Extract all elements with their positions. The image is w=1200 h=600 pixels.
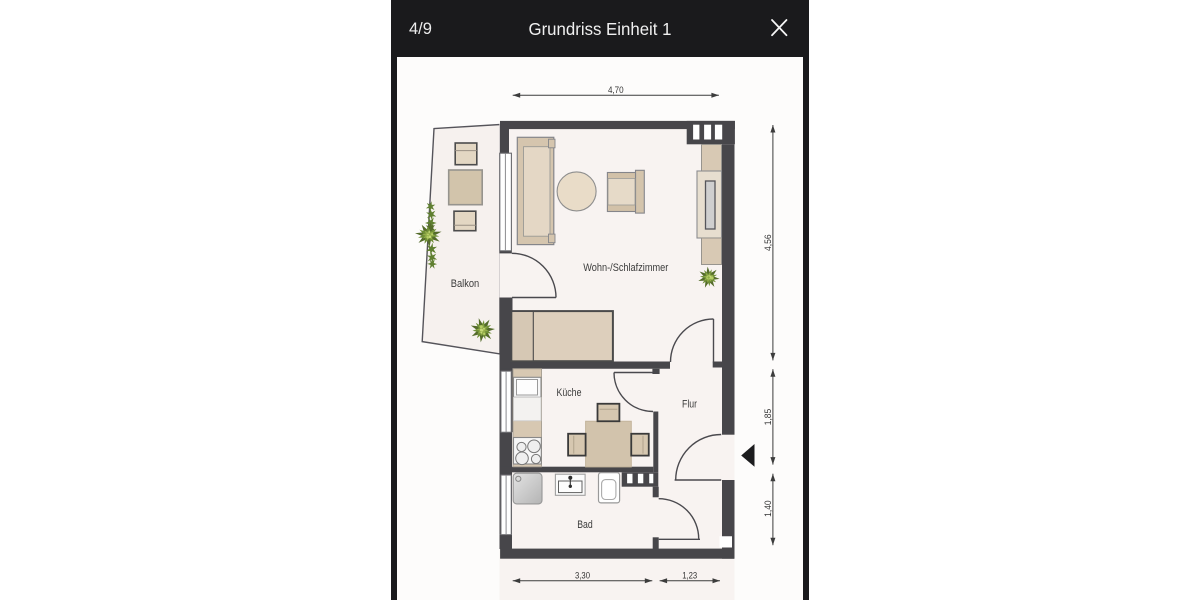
svg-text:Balkon: Balkon xyxy=(451,278,480,290)
svg-text:1,40: 1,40 xyxy=(763,500,773,516)
svg-text:4,70: 4,70 xyxy=(608,85,624,96)
svg-text:Grundriss Einheit 1: Grundriss Einheit 1 xyxy=(529,19,672,39)
svg-text:1,23: 1,23 xyxy=(682,571,697,582)
svg-text:1,85: 1,85 xyxy=(763,409,773,426)
svg-text:Bad: Bad xyxy=(577,519,593,531)
svg-text:Flur: Flur xyxy=(682,399,697,411)
svg-text:Wohn-/Schlafzimmer: Wohn-/Schlafzimmer xyxy=(583,262,668,274)
svg-text:4,56: 4,56 xyxy=(763,234,773,251)
svg-text:3,30: 3,30 xyxy=(575,571,590,582)
svg-text:Küche: Küche xyxy=(557,387,582,399)
svg-text:4/9: 4/9 xyxy=(409,20,432,38)
